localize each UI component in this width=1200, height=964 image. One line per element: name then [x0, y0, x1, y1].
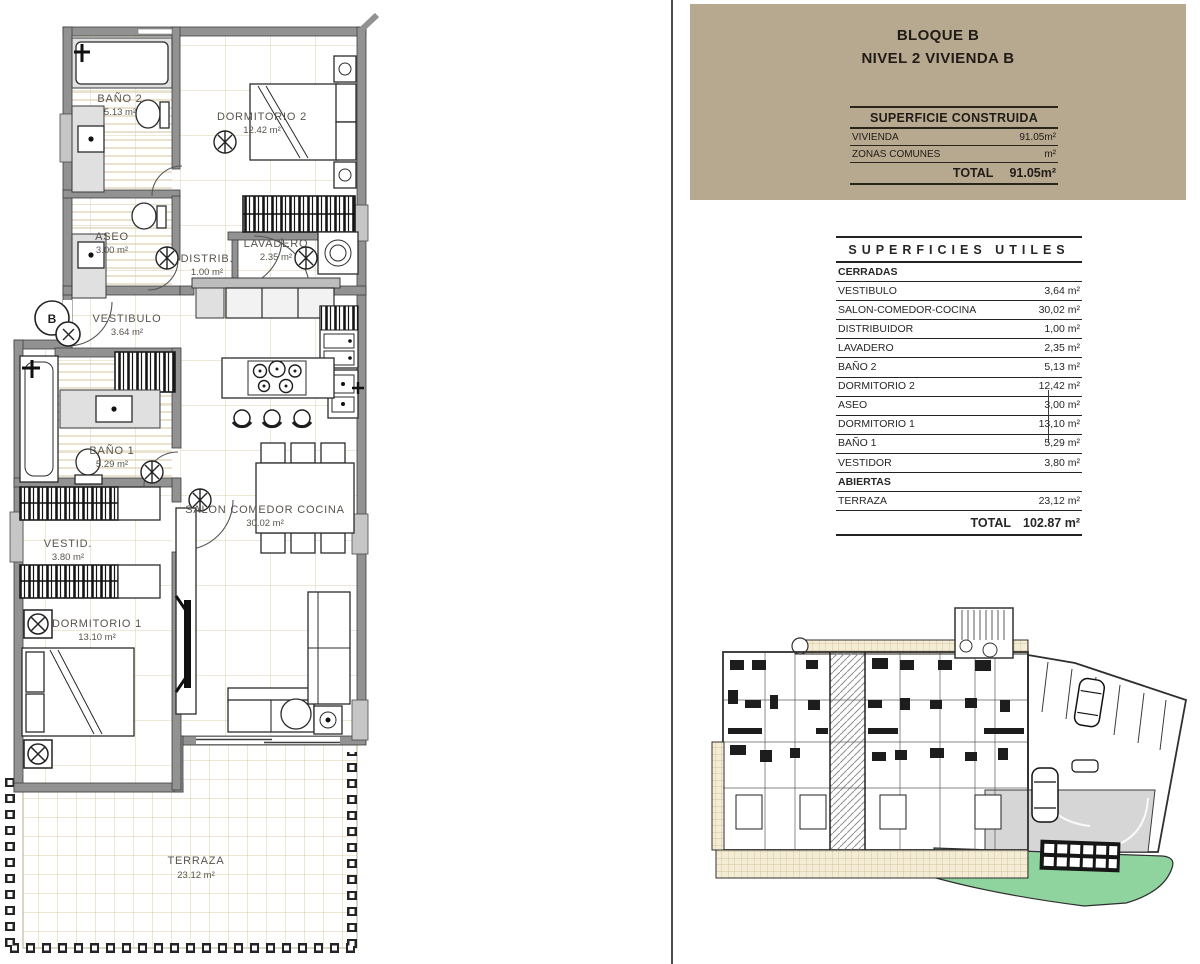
- room-area-dormitorio2: 12.42 m²: [243, 125, 281, 136]
- room-label-lavadero: LAVADERO: [244, 238, 309, 250]
- row-value: 23,12 m²: [1039, 495, 1080, 507]
- room-label-dormitorio1: DORMITORIO 1: [52, 618, 142, 630]
- room-area-lavadero: 2.35 m²: [260, 252, 292, 263]
- usable-area-total-row: TOTAL 102.87 m²: [836, 511, 1082, 534]
- row-label: VESTIDOR: [838, 457, 892, 469]
- table-row: TERRAZA23,12 m²: [836, 492, 1082, 511]
- panel-divider: [671, 0, 673, 964]
- room-label-banio2: BAÑO 2: [97, 92, 142, 105]
- row-value: 5,29 m²: [1044, 437, 1080, 449]
- table-row: DORMITORIO 113,10 m²: [836, 416, 1082, 435]
- table-row: BAÑO 25,13 m²: [836, 358, 1082, 377]
- entry-symbol-letter: B: [48, 312, 57, 326]
- table-row: DISTRIBUIDOR1,00 m²: [836, 320, 1082, 339]
- row-value: 12,42 m²: [1039, 380, 1080, 392]
- row-label: VIVIENDA: [852, 132, 899, 143]
- row-label: ASEO: [838, 399, 867, 411]
- garage-area: [985, 655, 1186, 852]
- room-area-dormitorio1: 13.10 m²: [78, 632, 116, 643]
- floor-plan: B: [0, 0, 672, 964]
- total-value: 91.05m²: [1009, 166, 1056, 180]
- plan-title-line1: BLOQUE B: [690, 24, 1186, 47]
- row-label: ZONAS COMUNES: [852, 149, 940, 160]
- row-label: SALON-COMEDOR-COCINA: [838, 304, 976, 316]
- page: { "header": { "line1": "BLOQUE B", "line…: [0, 0, 1200, 964]
- table-row: ZONAS COMUNES m²: [850, 146, 1058, 163]
- title-block: BLOQUE B NIVEL 2 VIVIENDA B SUPERFICIE C…: [690, 4, 1186, 200]
- table-row: DORMITORIO 212,42 m²: [836, 378, 1082, 397]
- usable-area-table: SUPERFICIES UTILES CERRADAS VESTIBULO3,6…: [836, 236, 1082, 536]
- room-label-dormitorio2: DORMITORIO 2: [217, 111, 307, 123]
- laundry-fixtures: [318, 232, 358, 274]
- room-area-terraza: 23.12 m²: [177, 870, 215, 881]
- total-value: 102.87 m²: [1023, 516, 1080, 530]
- room-area-aseo: 3.00 m²: [96, 245, 128, 256]
- room-label-vestidor: VESTID.: [44, 538, 92, 550]
- row-label: BAÑO 1: [838, 437, 877, 449]
- plan-title: BLOQUE B NIVEL 2 VIVIENDA B: [690, 24, 1186, 71]
- total-label: TOTAL: [971, 516, 1012, 530]
- table-artifact-line: [1048, 390, 1049, 443]
- dining-furniture: [256, 443, 354, 553]
- plan-title-line2: NIVEL 2 VIVIENDA B: [690, 47, 1186, 70]
- row-label: TERRAZA: [838, 495, 887, 507]
- row-value: 30,02 m²: [1039, 304, 1080, 316]
- built-area-title: SUPERFICIE CONSTRUIDA: [850, 108, 1058, 129]
- built-area-total-row: TOTAL 91.05m²: [850, 163, 1058, 183]
- pergola: [1040, 840, 1121, 873]
- table-row: VESTIBULO3,64 m²: [836, 282, 1082, 301]
- row-label: DISTRIBUIDOR: [838, 323, 913, 335]
- mini-beds: [736, 795, 1001, 829]
- row-value: 3,00 m²: [1044, 399, 1080, 411]
- row-label: LAVADERO: [838, 342, 894, 354]
- room-label-aseo: ASEO: [95, 231, 129, 243]
- row-value: 3,64 m²: [1044, 285, 1080, 297]
- row-label: DORMITORIO 1: [838, 418, 915, 430]
- apartments-block: [712, 608, 1028, 878]
- total-label: TOTAL: [953, 166, 994, 180]
- table-row: LAVADERO2,35 m²: [836, 339, 1082, 358]
- row-value: 5,13 m²: [1044, 361, 1080, 373]
- room-label-distribuidor: DISTRIB.: [181, 253, 234, 265]
- row-value: 3,80 m²: [1044, 457, 1080, 469]
- room-label-terraza: TERRAZA: [168, 855, 225, 867]
- table-row: SALON-COMEDOR-COCINA30,02 m²: [836, 301, 1082, 320]
- site-overview-plan: [700, 596, 1198, 926]
- row-value: 91.05m²: [1019, 132, 1056, 143]
- table-row: BAÑO 15,29 m²: [836, 435, 1082, 454]
- room-area-banio1: 5.29 m²: [96, 459, 128, 470]
- row-value: 2,35 m²: [1044, 342, 1080, 354]
- row-label: BAÑO 2: [838, 361, 877, 373]
- section-header-abiertas: ABIERTAS: [836, 473, 1082, 492]
- mini-furniture: [728, 658, 1024, 762]
- room-label-banio1: BAÑO 1: [89, 444, 134, 457]
- built-area-table: SUPERFICIE CONSTRUIDA VIVIENDA 91.05m² Z…: [850, 106, 1058, 185]
- room-area-salon: 30.02 m²: [246, 518, 284, 529]
- usable-area-title: SUPERFICIES UTILES: [836, 238, 1082, 263]
- table-row: VESTIDOR3,80 m²: [836, 454, 1082, 473]
- row-label: VESTIBULO: [838, 285, 897, 297]
- row-value: 13,10 m²: [1039, 418, 1080, 430]
- room-area-vestibulo: 3.64 m²: [111, 327, 143, 338]
- row-label: DORMITORIO 2: [838, 380, 915, 392]
- room-area-distribuidor: 1.00 m²: [191, 267, 223, 278]
- table-row: ASEO3,00 m²: [836, 397, 1082, 416]
- room-label-vestibulo: VESTIBULO: [93, 313, 162, 325]
- table-row: VIVIENDA 91.05m²: [850, 129, 1058, 146]
- room-label-salon: SALON COMEDOR COCINA: [185, 504, 345, 516]
- room-area-vestidor: 3.80 m²: [52, 552, 84, 563]
- section-header-cerradas: CERRADAS: [836, 263, 1082, 282]
- row-value: m²: [1044, 149, 1056, 160]
- stair-block: [955, 608, 1013, 658]
- row-value: 1,00 m²: [1044, 323, 1080, 335]
- room-area-banio2: 5.13 m²: [104, 107, 136, 118]
